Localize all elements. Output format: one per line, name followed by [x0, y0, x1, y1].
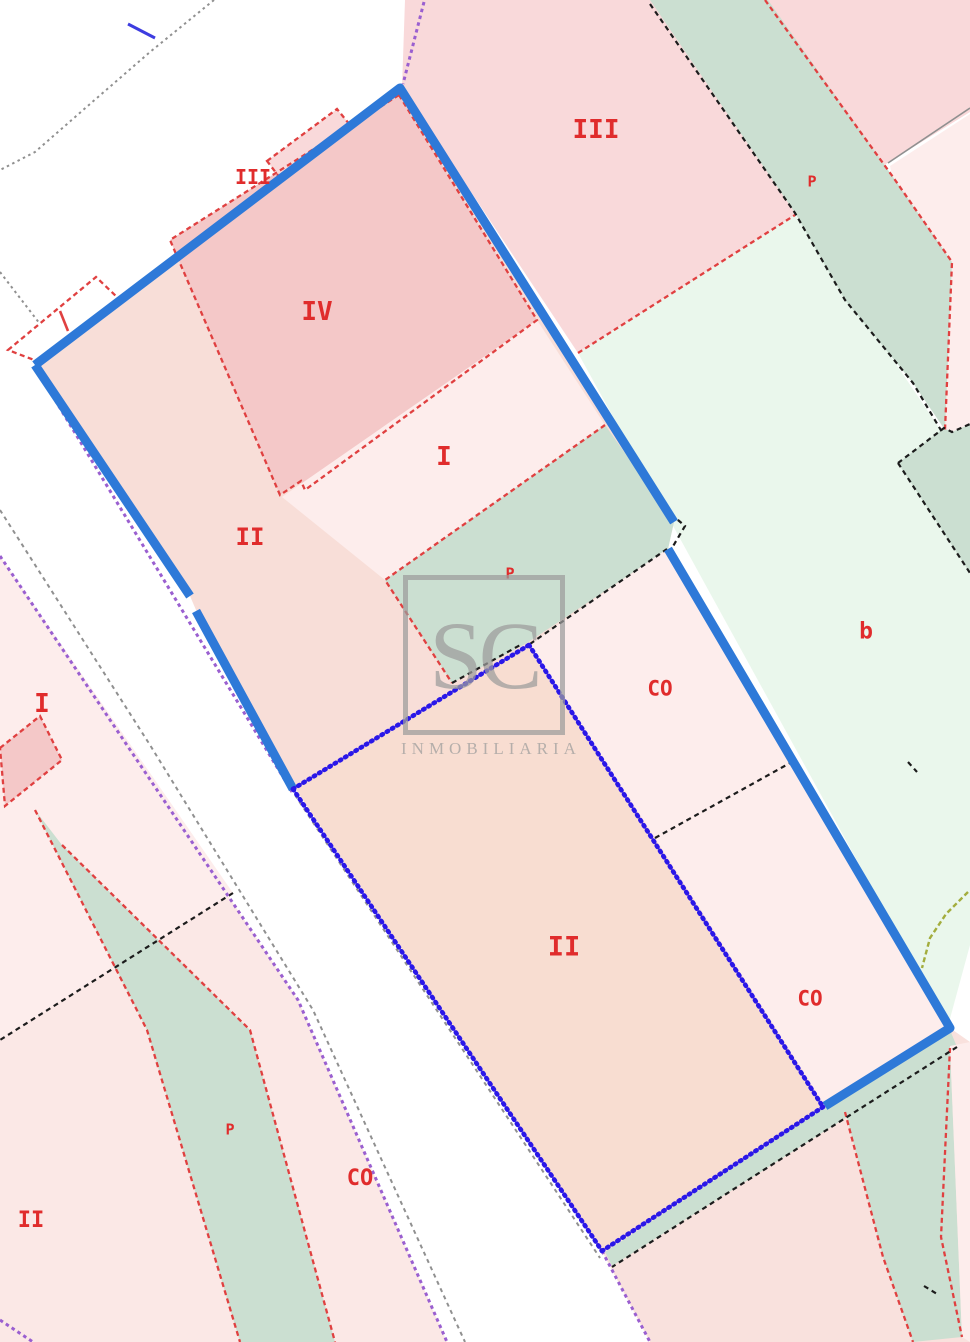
topleft-dotted-curve: [0, 0, 214, 170]
blue-pen-tick: [128, 24, 155, 38]
red-tick-mark: [60, 311, 68, 331]
topleft-dotted-segment: [0, 272, 40, 324]
cadastral-map-screenshot: IIIIVIIIPIIIPCObIICOCOPIII SC INMOBILIAR…: [0, 0, 970, 1342]
cadastral-map: [0, 0, 970, 1342]
